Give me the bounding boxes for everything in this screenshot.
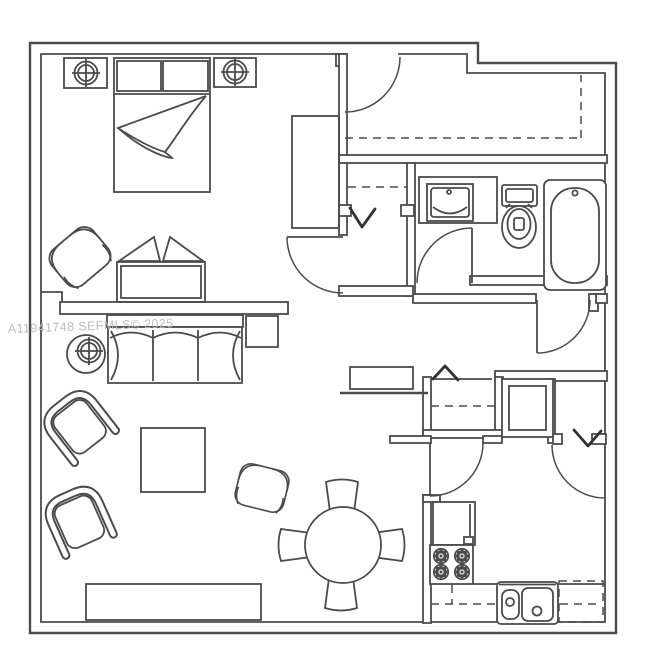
wall-linen-jamb-right xyxy=(401,205,414,216)
toilet xyxy=(502,185,537,248)
bench-pillow-right xyxy=(163,237,203,261)
linen-closet-door-mark xyxy=(350,208,375,227)
kitchen-sink xyxy=(497,582,558,624)
bed xyxy=(114,58,210,192)
wall-right-closet-jamb-left xyxy=(553,434,562,444)
living-room xyxy=(41,315,291,620)
refrigerator xyxy=(433,502,475,545)
bathroom-door xyxy=(417,228,472,283)
wall-hall-corner xyxy=(596,294,607,303)
dining-area xyxy=(279,480,405,611)
vanity-sink xyxy=(419,177,497,223)
floor-plan-image: A11941748 SEFMLS© 2025 xyxy=(0,0,650,658)
dining-table xyxy=(305,507,381,583)
hall-door xyxy=(537,300,590,353)
bench-pillow-left xyxy=(119,237,160,261)
wall-bathroom-left xyxy=(407,163,415,296)
wall-bedroom-bottom xyxy=(60,302,288,314)
kitchen xyxy=(430,502,605,624)
dishwasher-outline xyxy=(559,581,603,622)
washer-dryer xyxy=(502,379,553,437)
wall-hall-bottom-left xyxy=(390,436,431,443)
wall-linen-jamb-left xyxy=(339,205,351,216)
wall-coat-closet-left xyxy=(423,377,431,437)
wall-corridor-bottom xyxy=(339,286,413,296)
armchair-upper xyxy=(41,388,115,463)
accent-chair xyxy=(233,461,291,514)
kitchen-door xyxy=(430,443,483,496)
bedroom-bench xyxy=(117,237,205,302)
wardrobe xyxy=(292,116,339,228)
entry-door-swing xyxy=(345,57,400,112)
media-console xyxy=(86,584,261,620)
armchair-lower xyxy=(44,485,113,555)
hall-right-door xyxy=(552,445,605,498)
bathtub xyxy=(544,180,606,290)
sofa-side-table xyxy=(246,316,278,347)
walkin-closet-shelf-line xyxy=(345,75,581,138)
wall-hall-bottom-mid xyxy=(483,436,502,443)
floor-plan-drawing: A11941748 SEFMLS© 2025 xyxy=(0,0,650,658)
wall-notch xyxy=(41,292,62,302)
bedroom-door xyxy=(287,237,343,293)
coat-closet-door-mark xyxy=(433,366,458,380)
wall-hall-top xyxy=(413,294,536,303)
hall-console xyxy=(350,367,413,389)
lamp-table xyxy=(67,335,105,373)
coffee-table xyxy=(141,428,205,492)
wall-bathroom-top xyxy=(339,155,607,163)
bedroom-corner-chair xyxy=(45,222,116,292)
stove xyxy=(430,545,473,584)
